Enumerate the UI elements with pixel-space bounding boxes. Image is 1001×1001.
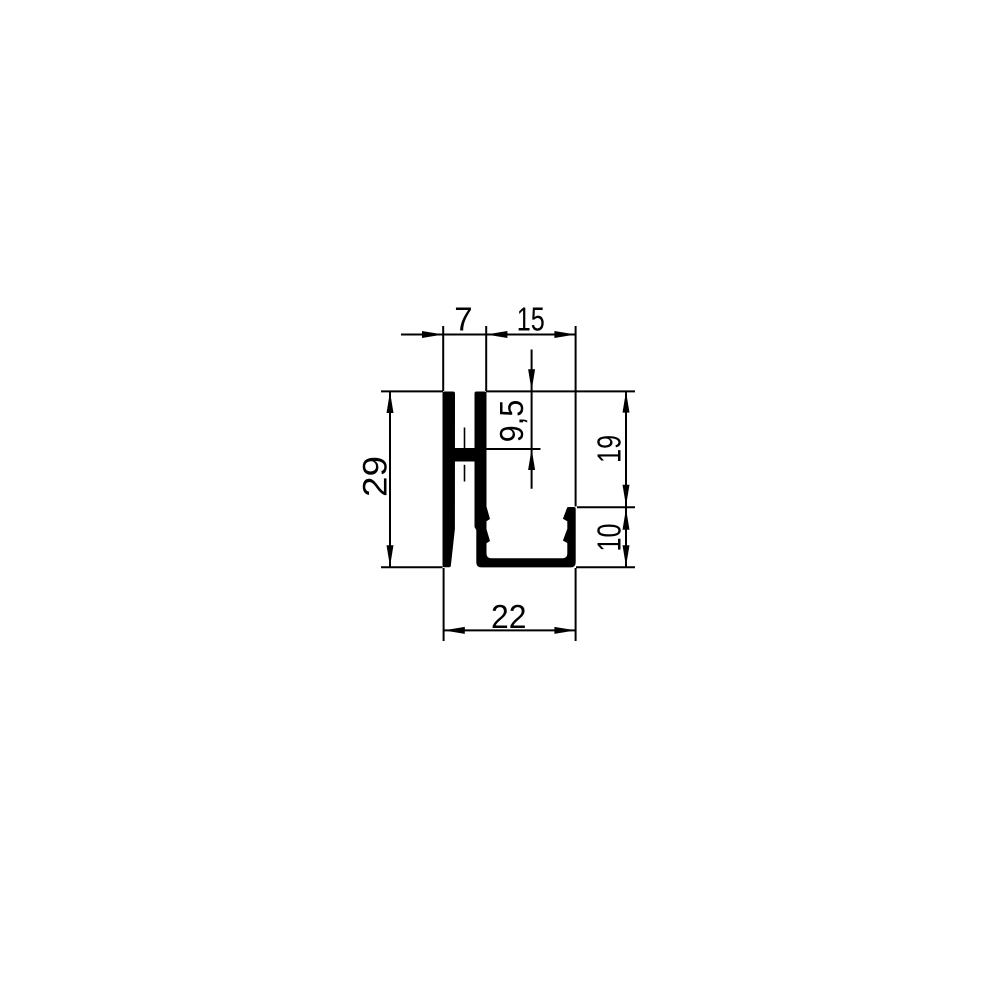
svg-text:19: 19 [590,435,627,463]
svg-text:9,5: 9,5 [493,400,530,443]
svg-text:29: 29 [357,456,395,497]
svg-text:10: 10 [590,524,627,552]
svg-text:15: 15 [517,301,545,338]
svg-text:22: 22 [491,598,527,635]
svg-text:7: 7 [454,301,472,338]
